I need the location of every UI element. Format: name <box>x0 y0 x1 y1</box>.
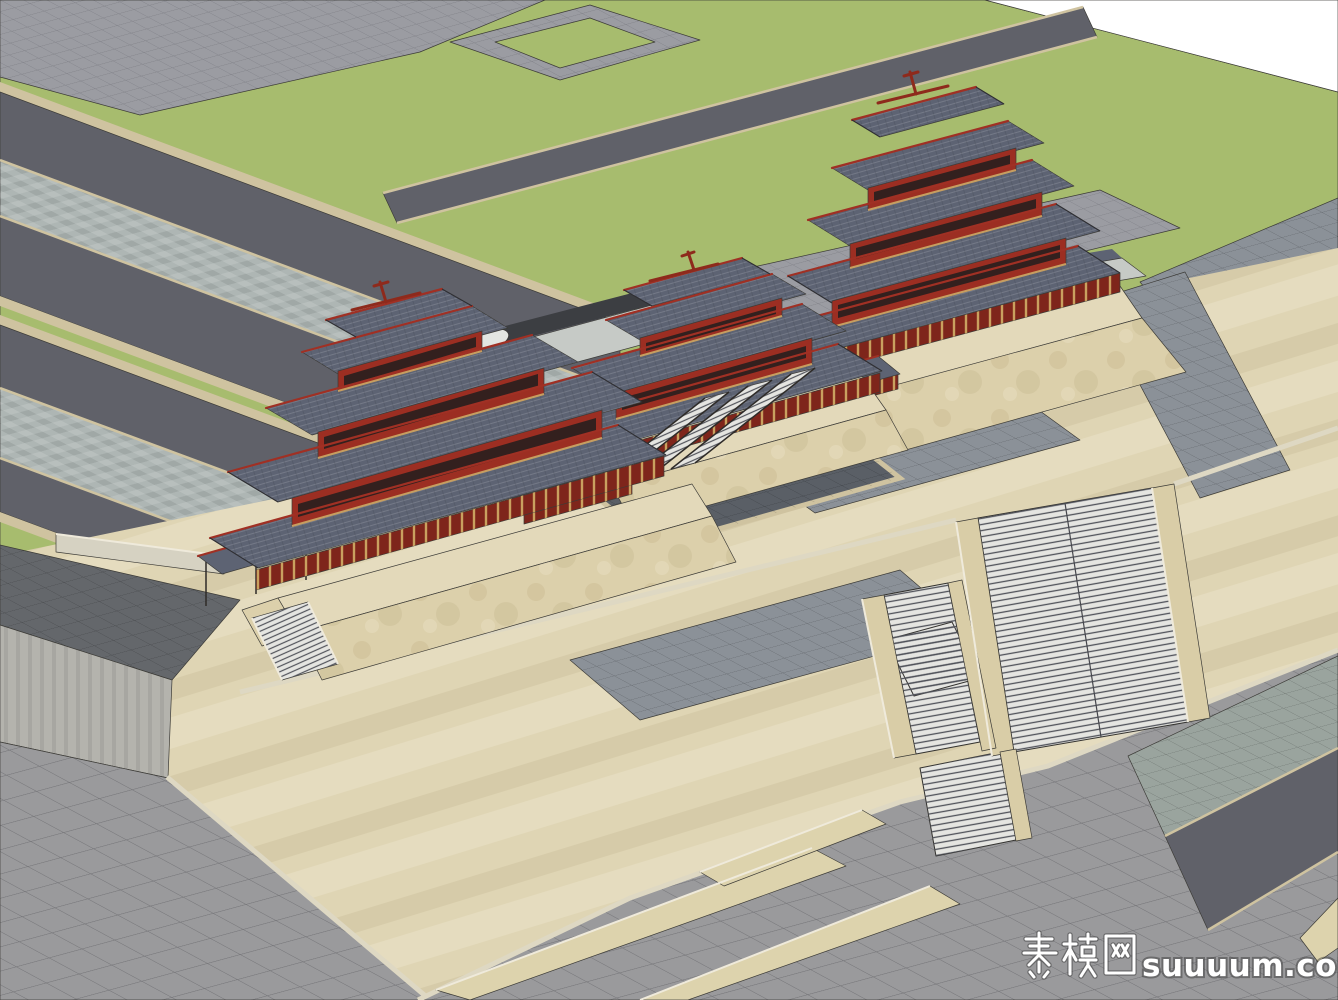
watermark-latin: suuuum.com <box>1142 948 1338 984</box>
model-viewport: suuuum.com <box>0 0 1338 1000</box>
treads <box>920 752 1016 856</box>
scene-render: suuuum.com <box>0 0 1338 1000</box>
